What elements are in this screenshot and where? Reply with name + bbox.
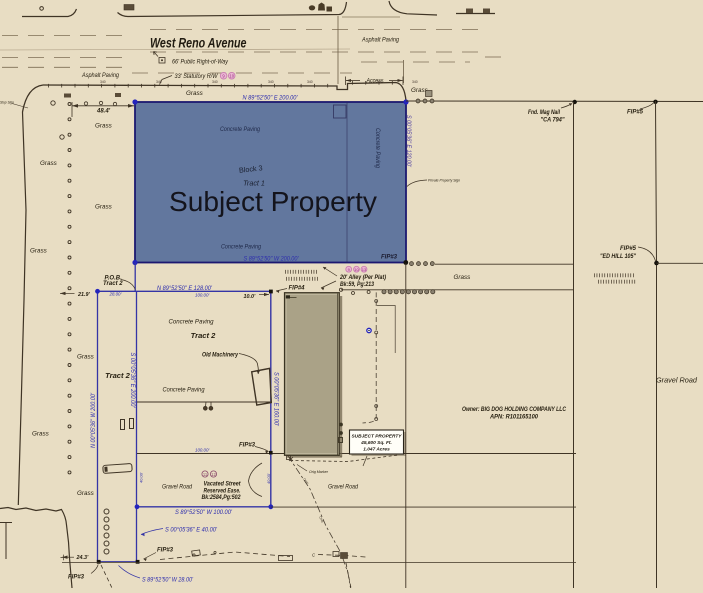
svg-text:Gravel Road: Gravel Road	[162, 484, 192, 491]
svg-text:340: 340	[412, 80, 418, 84]
svg-text:340: 340	[100, 80, 106, 84]
svg-text:Stop Sign: Stop Sign	[0, 101, 14, 105]
svg-text:66' Public Right-of-Way: 66' Public Right-of-Way	[172, 59, 229, 66]
svg-text:Concrete Paving: Concrete Paving	[169, 319, 215, 326]
svg-text:340: 340	[268, 80, 274, 84]
svg-text:10: 10	[354, 267, 359, 272]
svg-text:Bk:59, Pg:213: Bk:59, Pg:213	[340, 281, 374, 288]
svg-text:Subject Property: Subject Property	[169, 186, 377, 217]
svg-text:S 00°05'36" E 200.00': S 00°05'36" E 200.00'	[129, 353, 135, 409]
svg-text:Fnd. Mag Nail: Fnd. Mag Nail	[528, 110, 560, 116]
svg-text:20' Alley (Per Plat): 20' Alley (Per Plat)	[339, 274, 386, 281]
svg-text:10.0': 10.0'	[244, 294, 256, 300]
svg-text:Concrete Paving: Concrete Paving	[163, 387, 206, 394]
svg-text:Grass: Grass	[40, 160, 58, 167]
svg-text:N 00°05'36" W 200.00': N 00°05'36" W 200.00'	[91, 392, 97, 448]
svg-text:Bk:2584,Pg:502: Bk:2584,Pg:502	[202, 495, 242, 501]
svg-text:Orig Marker: Orig Marker	[309, 470, 329, 474]
svg-text:11: 11	[203, 472, 208, 477]
svg-text:12: 12	[211, 472, 216, 477]
svg-text:40.00': 40.00'	[139, 472, 144, 483]
svg-text:Tract 2: Tract 2	[105, 371, 131, 380]
svg-text:FIP#5: FIP#5	[620, 246, 637, 252]
svg-text:1.047 Acres: 1.047 Acres	[363, 447, 390, 453]
svg-text:Asphalt Paving: Asphalt Paving	[81, 72, 119, 79]
svg-text:340: 340	[307, 80, 313, 84]
svg-text:FIP#3: FIP#3	[381, 255, 398, 261]
svg-text:24.3': 24.3'	[76, 555, 89, 561]
svg-text:Grass: Grass	[30, 248, 48, 255]
svg-text:"CA 794": "CA 794"	[541, 118, 565, 124]
svg-text:S 89°52'50" W 100.00': S 89°52'50" W 100.00'	[175, 508, 233, 516]
svg-text:S 89°52'50" W 28.00': S 89°52'50" W 28.00'	[142, 576, 194, 584]
svg-text:N 89°52'50" E 200.00': N 89°52'50" E 200.00'	[243, 94, 299, 102]
svg-text:Tract 2: Tract 2	[191, 331, 217, 340]
svg-text:Tract 2: Tract 2	[103, 281, 123, 287]
svg-text:100.00': 100.00'	[195, 293, 209, 298]
svg-text:Grass: Grass	[95, 123, 113, 130]
svg-text:13: 13	[362, 267, 367, 272]
svg-text:40.00': 40.00'	[266, 473, 271, 484]
svg-text:S 00°05'36" E 40.00': S 00°05'36" E 40.00'	[165, 526, 218, 534]
svg-text:100.00': 100.00'	[195, 448, 209, 453]
svg-text:S 00°05'36" E 120.00': S 00°05'36" E 120.00'	[405, 115, 411, 168]
svg-text:S 00°05'36" E 160.00': S 00°05'36" E 160.00'	[273, 372, 279, 427]
svg-text:"ED HILL 105": "ED HILL 105"	[600, 254, 636, 260]
svg-text:FIP#3: FIP#3	[239, 443, 256, 449]
svg-text:21.9': 21.9'	[77, 292, 90, 298]
svg-text:10: 10	[229, 74, 234, 79]
svg-text:Grass: Grass	[32, 431, 50, 438]
svg-text:Owner: BIG DOG HOLDING COMPANY: Owner: BIG DOG HOLDING COMPANY LLC	[462, 406, 566, 413]
svg-text:Old Machinery: Old Machinery	[202, 352, 238, 359]
svg-text:340: 340	[376, 80, 382, 84]
svg-text:N 89°52'50" E 128.00': N 89°52'50" E 128.00'	[157, 285, 213, 292]
svg-text:Gravel Road: Gravel Road	[656, 376, 698, 385]
svg-text:Grass: Grass	[77, 490, 95, 497]
svg-text:Grass: Grass	[95, 204, 113, 211]
svg-text:S 89°52'50" W 200.00': S 89°52'50" W 200.00'	[244, 255, 300, 263]
svg-text:Gravel Road: Gravel Road	[328, 484, 358, 491]
svg-text:FIP#3: FIP#3	[157, 548, 174, 554]
svg-text:45,600 Sq. Ft.: 45,600 Sq. Ft.	[360, 440, 392, 446]
svg-text:West Reno Avenue: West Reno Avenue	[150, 36, 247, 51]
svg-text:Concrete Paving: Concrete Paving	[220, 126, 260, 133]
svg-text:340: 340	[212, 80, 218, 84]
svg-text:SUBJECT PROPERTY: SUBJECT PROPERTY	[351, 434, 402, 440]
svg-text:340: 340	[156, 80, 162, 84]
svg-text:Asphalt Paving: Asphalt Paving	[361, 37, 399, 44]
svg-text:FIP#5: FIP#5	[627, 110, 644, 116]
svg-text:Concrete Paving: Concrete Paving	[221, 244, 261, 251]
svg-text:Grass: Grass	[77, 354, 95, 361]
svg-text:Concrete Paving: Concrete Paving	[374, 128, 380, 169]
svg-text:48.4': 48.4'	[96, 109, 111, 115]
svg-text:Private Property Sign: Private Property Sign	[428, 179, 460, 183]
svg-text:28.00': 28.00'	[109, 292, 122, 297]
svg-text:APN: R101165100: APN: R101165100	[489, 414, 538, 421]
svg-text:FIP#4: FIP#4	[289, 286, 306, 292]
svg-text:Grass: Grass	[186, 90, 204, 97]
svg-text:Vacated Street: Vacated Street	[204, 482, 242, 488]
svg-text:Reserved Ease.: Reserved Ease.	[204, 489, 241, 495]
svg-text:Grass: Grass	[454, 274, 472, 281]
